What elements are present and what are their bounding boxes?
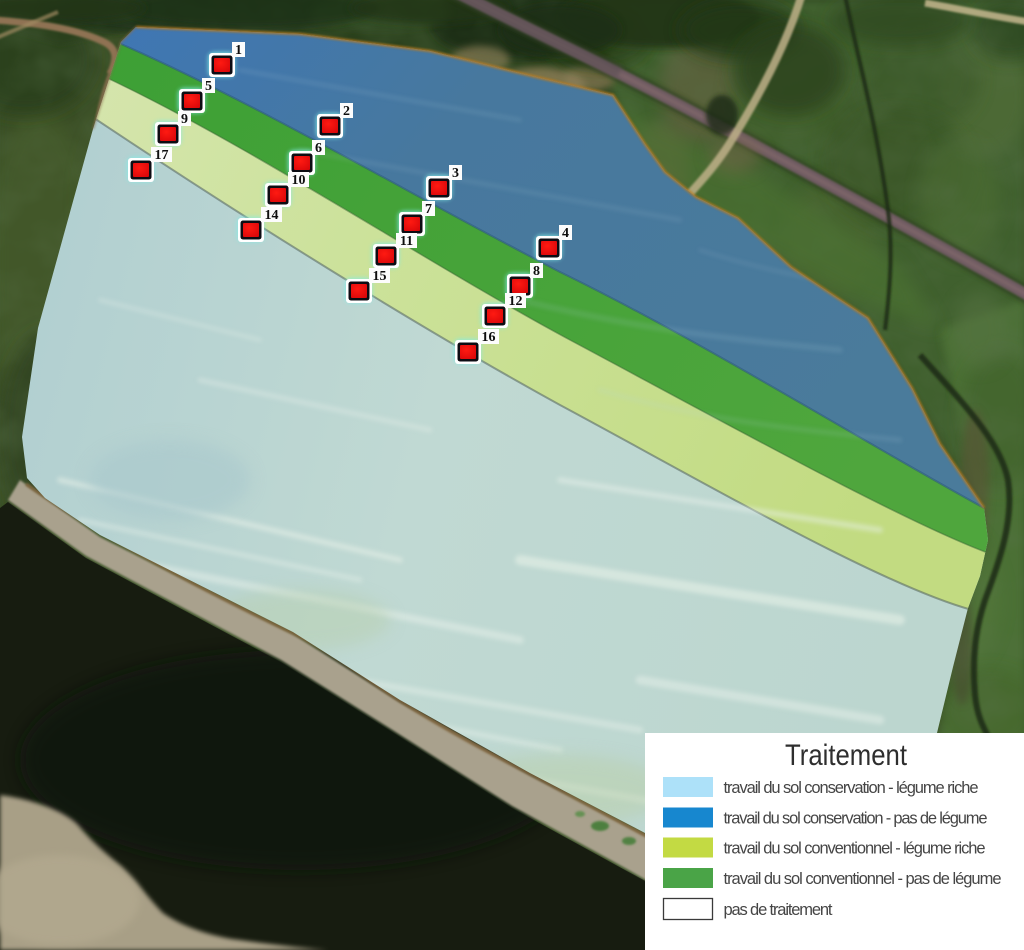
svg-text:5: 5 [205, 79, 212, 94]
svg-text:7: 7 [425, 202, 432, 217]
svg-text:Traitement: Traitement [785, 739, 908, 772]
svg-text:travail du sol conventionnel -: travail du sol conventionnel - légume ri… [724, 840, 986, 858]
svg-text:travail du sol conventionnel: travail du sol conventionnel - pas de lé… [724, 870, 1002, 888]
svg-text:11: 11 [400, 234, 413, 249]
svg-text:9: 9 [181, 112, 188, 127]
svg-text:8: 8 [533, 264, 540, 279]
svg-text:travail du sol conservation -: travail du sol conservation - légume ric… [724, 779, 979, 797]
svg-text:17: 17 [155, 148, 169, 163]
svg-text:2: 2 [343, 104, 350, 119]
svg-text:12: 12 [509, 294, 523, 309]
svg-text:4: 4 [562, 226, 569, 241]
svg-text:1: 1 [235, 43, 242, 58]
svg-text:6: 6 [315, 141, 322, 156]
svg-text:travail du sol conservation -: travail du sol conservation - pas de lég… [724, 810, 988, 828]
svg-text:15: 15 [373, 269, 387, 284]
svg-text:pas de traitement: pas de traitement [724, 901, 833, 919]
svg-text:16: 16 [482, 330, 496, 345]
svg-text:3: 3 [452, 166, 459, 181]
svg-text:10: 10 [292, 173, 306, 188]
svg-text:14: 14 [265, 208, 279, 223]
